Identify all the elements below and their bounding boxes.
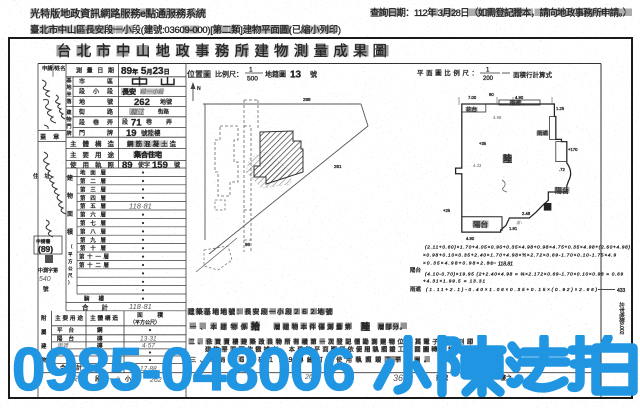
svg-text:北市地測9.002: 北市地測9.002: [618, 302, 625, 335]
svg-text:號: 號: [43, 285, 49, 293]
svg-text:使字: 使字: [138, 161, 150, 169]
svg-text:陸: 陸: [361, 321, 370, 332]
svg-text:98: 98: [245, 242, 251, 247]
svg-text:+25: +25: [443, 208, 451, 213]
svg-text:89年 5月23日: 89年 5月23日: [121, 66, 170, 77]
svg-text:第五層: 第五層: [80, 202, 106, 210]
svg-text:1.25: 1.25: [556, 106, 565, 111]
svg-text:坐: 坐: [67, 91, 72, 98]
svg-text:(4.10-0.70)×19.95 (2+2.40×4.98: (4.10-0.70)×19.95 (2+2.40×4.98 = ⅔×2.172…: [425, 272, 623, 277]
svg-text:200: 200: [483, 76, 494, 82]
svg-text:台北市中山地政事務所建物測量成果圖: 台北市中山地政事務所建物測量成果圖: [57, 43, 387, 60]
svg-text:段小段: 段小段: [79, 88, 113, 96]
svg-text:第七層: 第七層: [80, 219, 106, 227]
svg-text:平面圖比例尺：: 平面圖比例尺：: [417, 68, 478, 77]
svg-text:姓名: 姓名: [55, 64, 65, 72]
svg-text:段一小段: 段一小段: [140, 88, 165, 96]
svg-text:2.48: 2.48: [522, 211, 531, 216]
svg-text:(89): (89): [38, 244, 53, 254]
svg-text:地號: 地號: [160, 98, 172, 106]
svg-text:.72: .72: [559, 167, 565, 172]
svg-text:比例尺：: 比例尺：: [215, 70, 243, 79]
svg-text:門: 門: [67, 124, 72, 130]
svg-text:物: 物: [67, 192, 73, 200]
svg-text:1.91: 1.91: [509, 226, 518, 231]
svg-text:118·81: 118·81: [129, 202, 152, 211]
svg-text:巷: 巷: [146, 118, 152, 126]
svg-text:118·81: 118·81: [129, 302, 152, 311]
svg-text:地: 地: [67, 84, 72, 91]
svg-text:433: 433: [617, 288, 626, 294]
svg-text:蓋章: 蓋章: [40, 133, 66, 141]
svg-text:×0.35×4.98+0.98×2.31: ×0.35×4.98+0.98×2.31: [423, 261, 493, 266]
svg-text:N: N: [197, 86, 201, 92]
svg-text:（平方公尺）: （平方公尺）: [130, 319, 160, 326]
svg-text:建: 建: [67, 109, 72, 116]
svg-text:層部分。: 層部分。: [378, 322, 406, 331]
svg-text:90: 90: [489, 92, 494, 97]
svg-text:主要用途: 主要用途: [55, 314, 83, 322]
svg-text:第六層: 第六層: [80, 211, 106, 219]
svg-text:住址: 住址: [33, 172, 56, 180]
svg-text:號: 號: [174, 161, 180, 169]
svg-text:261: 261: [334, 164, 342, 169]
svg-text:位置圖: 位置圖: [187, 69, 211, 79]
svg-text:集合住宅: 集合住宅: [133, 150, 162, 159]
svg-text:第二層: 第二層: [80, 177, 106, 185]
svg-text:）: ）: [68, 280, 73, 285]
svg-text:街路: 街路: [158, 108, 170, 116]
svg-text:拾: 拾: [251, 321, 260, 332]
svg-text:288: 288: [303, 97, 311, 102]
svg-text:含↓: 含↓: [516, 220, 522, 225]
svg-text:層建物本件僅測量第: 層建物本件僅測量第: [274, 322, 352, 331]
svg-text:(2.11+0.60)×1.70+4.05×0.90+0.3: (2.11+0.60)×1.70+4.05×0.90+0.35×4.98+0.9…: [425, 245, 630, 250]
svg-text:面: 面: [67, 211, 73, 218]
svg-text:第十層: 第十層: [80, 244, 106, 252]
svg-text:方: 方: [68, 258, 73, 265]
svg-text:落: 落: [67, 98, 72, 105]
svg-text:×0.98+0.10×0.35+2.40×1.70+4.98: ×0.98+0.10×0.35+2.40×1.70+4.98×½×2.72×0.…: [423, 252, 616, 258]
svg-text:4.33: 4.33: [473, 163, 482, 168]
svg-text:159: 159: [152, 160, 168, 171]
svg-text:（: （: [68, 244, 73, 249]
svg-text:第三層: 第三層: [80, 185, 106, 193]
svg-text:鋼筋混凝土造: 鋼筋混凝土造: [127, 139, 178, 148]
svg-text:積: 積: [67, 228, 73, 236]
svg-text:龍江: 龍江: [130, 109, 145, 117]
svg-text:地面層: 地面層: [80, 169, 106, 177]
svg-text:主體構造: 主體構造: [90, 314, 118, 322]
svg-text:建: 建: [67, 174, 73, 182]
svg-text:物: 物: [67, 116, 72, 123]
svg-text:基: 基: [67, 77, 72, 84]
svg-text:(1.11+2.1)-0.40×1.06×0.35+0.15: (1.11+2.1)-0.40×1.06×0.35+0.15×(0.92)×2.…: [426, 287, 597, 292]
svg-text:牌: 牌: [67, 130, 72, 137]
svg-text:第四層: 第四層: [80, 194, 106, 202]
svg-text:第八層: 第八層: [80, 227, 106, 235]
svg-text:4.98: 4.98: [493, 115, 502, 120]
svg-text:號陸樓: 號陸樓: [141, 128, 161, 137]
svg-text:7.00: 7.00: [468, 95, 477, 100]
svg-text:公: 公: [68, 266, 73, 271]
svg-text:地籍圖: 地籍圖: [265, 70, 286, 79]
svg-text:陽台: 陽台: [410, 266, 422, 274]
svg-text:118.81: 118.81: [498, 262, 513, 268]
svg-text:89: 89: [122, 160, 133, 171]
svg-text:段: 段: [122, 118, 128, 126]
svg-text:4.90: 4.90: [515, 95, 524, 100]
svg-text:建築基地地號：長安段一小段２６２地號: 建築基地地號：長安段一小段２６２地號: [188, 307, 332, 316]
svg-text:號: 號: [310, 70, 317, 79]
svg-text:19: 19: [126, 128, 137, 139]
svg-text:1: 1: [249, 67, 253, 74]
svg-text:13: 13: [290, 70, 302, 81]
svg-text:+35: +35: [479, 141, 487, 146]
svg-text:540: 540: [39, 276, 51, 283]
svg-text:鋼: 鋼: [97, 326, 103, 334]
svg-text:附: 附: [41, 314, 47, 322]
svg-text:雨遮: 雨遮: [410, 285, 422, 293]
svg-text:平台: 平台: [57, 326, 80, 334]
svg-text:500: 500: [247, 76, 258, 83]
svg-text:4.90: 4.90: [466, 236, 475, 241]
svg-text:弄: 弄: [166, 119, 172, 126]
svg-text:+170: +170: [568, 147, 578, 152]
svg-text:262: 262: [134, 97, 150, 108]
svg-text:長安: 長安: [122, 87, 136, 96]
svg-text:中測字第: 中測字第: [38, 267, 58, 274]
svg-text:第九層: 第九層: [80, 236, 106, 244]
svg-text:段巷弄: 段巷弄: [79, 119, 113, 127]
svg-text:面積行計算式: 面積行計算式: [513, 70, 553, 79]
svg-text:+4.31×1.99.5 = 13.31: +4.31×1.99.5 = 13.31: [423, 279, 485, 284]
